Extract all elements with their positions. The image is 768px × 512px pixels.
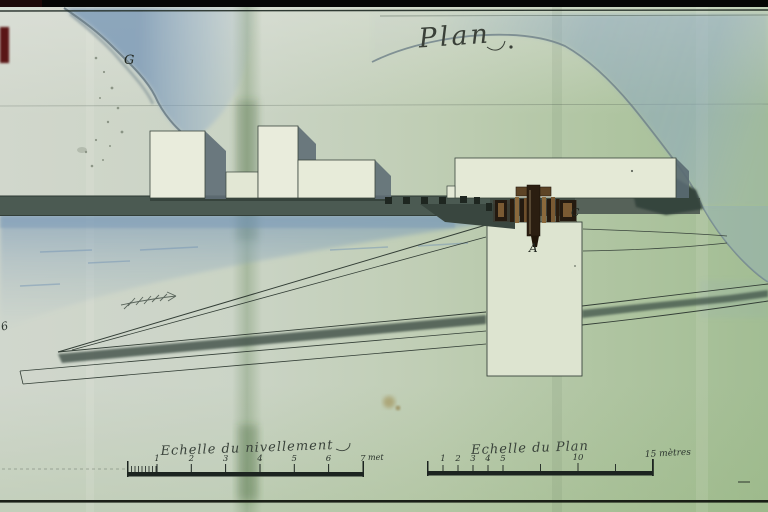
scale-tick-label: 5	[291, 454, 296, 464]
annex-wall	[226, 172, 258, 198]
scale-tick-label: 4	[256, 454, 262, 464]
scale-left-unit: met	[368, 453, 384, 462]
scale-tick-label: 1	[154, 454, 159, 464]
pier	[455, 158, 676, 198]
label-C: C	[571, 206, 580, 219]
pier-step	[447, 186, 455, 198]
film-mark-left	[0, 27, 9, 63]
building2	[258, 126, 298, 198]
scale-tick-label: 7	[360, 454, 366, 464]
scale-tick-label: 1	[440, 454, 445, 464]
plan-title: Plan	[417, 19, 492, 55]
scale-tick-label: 4	[484, 454, 490, 464]
scale-tick-label: 2	[454, 454, 460, 464]
scale-right-10: 10	[573, 453, 584, 463]
scale-tick-label: 3	[470, 454, 475, 464]
scale-tick-label: 5	[500, 454, 505, 464]
bottom-rule	[0, 500, 768, 503]
film-edge-top	[0, 0, 768, 7]
paper-stain-spot	[383, 396, 395, 408]
scale-tick-label: 6	[326, 454, 332, 464]
scale-tick-label: 2	[188, 454, 194, 464]
label-G: G	[124, 53, 134, 68]
photographed-plan-drawing: Plan G C A 6 Echelle du nivellement 1234…	[0, 0, 768, 512]
building2-wing	[298, 160, 375, 198]
building1	[150, 131, 205, 198]
title-period	[509, 45, 512, 48]
label-A: A	[528, 241, 538, 255]
scale-tick-label: 3	[223, 454, 228, 464]
mechanism-beam	[527, 185, 540, 236]
plan-canvas: Plan G C A 6 Echelle du nivellement 1234…	[0, 0, 768, 512]
top-rule	[0, 10, 768, 11]
